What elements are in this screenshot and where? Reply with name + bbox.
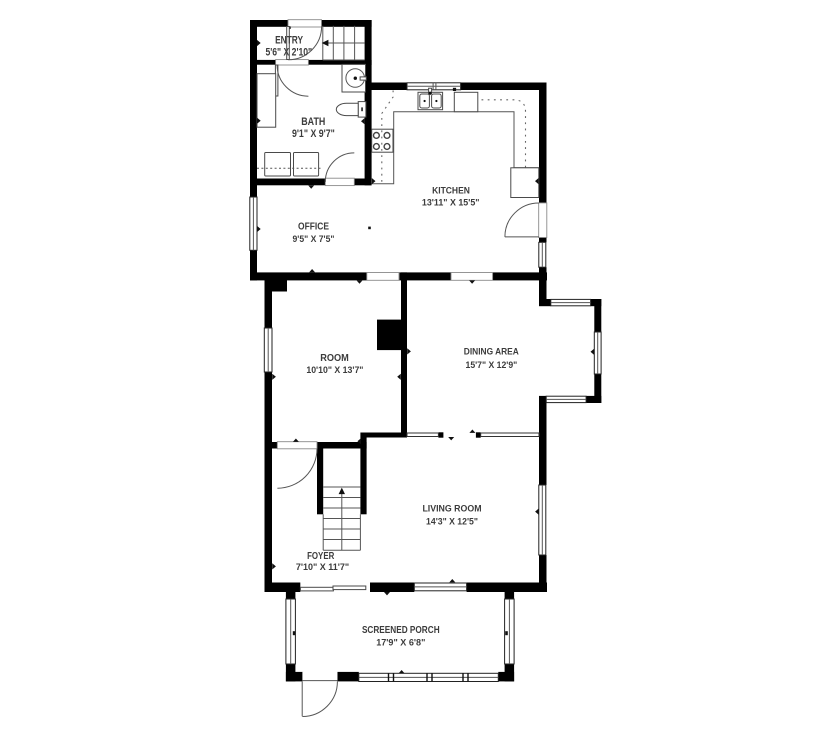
svg-text:FOYER: FOYER (307, 551, 335, 562)
svg-text:14'3" X 12'5": 14'3" X 12'5" (426, 516, 478, 526)
svg-text:9'5" X 7'5": 9'5" X 7'5" (293, 234, 335, 245)
svg-text:LIVING ROOM: LIVING ROOM (422, 504, 481, 515)
svg-text:DINING AREA: DINING AREA (464, 347, 519, 358)
svg-text:ROOM: ROOM (320, 353, 349, 364)
svg-text:KITCHEN: KITCHEN (432, 184, 470, 195)
svg-text:SCREENED PORCH: SCREENED PORCH (362, 625, 440, 636)
svg-text:9'1" X 9'7": 9'1" X 9'7" (292, 128, 335, 140)
svg-text:17'9" X 6'8": 17'9" X 6'8" (376, 637, 425, 648)
svg-text:10'10" X 13'7": 10'10" X 13'7" (306, 364, 363, 375)
svg-text:13'11" X 15'5": 13'11" X 15'5" (422, 197, 480, 207)
svg-text:5'6" X 2'10": 5'6" X 2'10" (265, 46, 312, 58)
svg-text:15'7" X 12'9": 15'7" X 12'9" (466, 359, 518, 370)
svg-text:ENTRY: ENTRY (275, 34, 303, 46)
svg-text:7'10" X 11'7": 7'10" X 11'7" (296, 562, 349, 573)
svg-text:BATH: BATH (301, 116, 325, 128)
svg-text:OFFICE: OFFICE (298, 222, 329, 233)
